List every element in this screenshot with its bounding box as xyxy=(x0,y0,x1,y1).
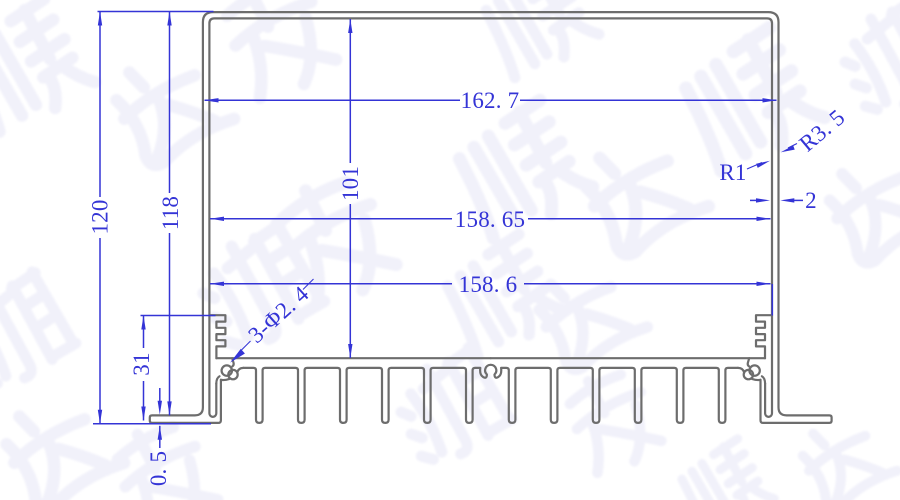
svg-text:158. 65: 158. 65 xyxy=(455,207,525,232)
svg-text:118: 118 xyxy=(158,196,183,230)
svg-text:158. 6: 158. 6 xyxy=(459,272,518,297)
svg-text:120: 120 xyxy=(88,199,113,234)
svg-text:2: 2 xyxy=(805,188,817,213)
svg-text:101: 101 xyxy=(338,166,363,201)
svg-text:162. 7: 162. 7 xyxy=(461,88,520,113)
svg-text:31: 31 xyxy=(129,352,154,375)
svg-text:0. 5: 0. 5 xyxy=(146,451,171,486)
svg-text:R1: R1 xyxy=(719,160,746,185)
